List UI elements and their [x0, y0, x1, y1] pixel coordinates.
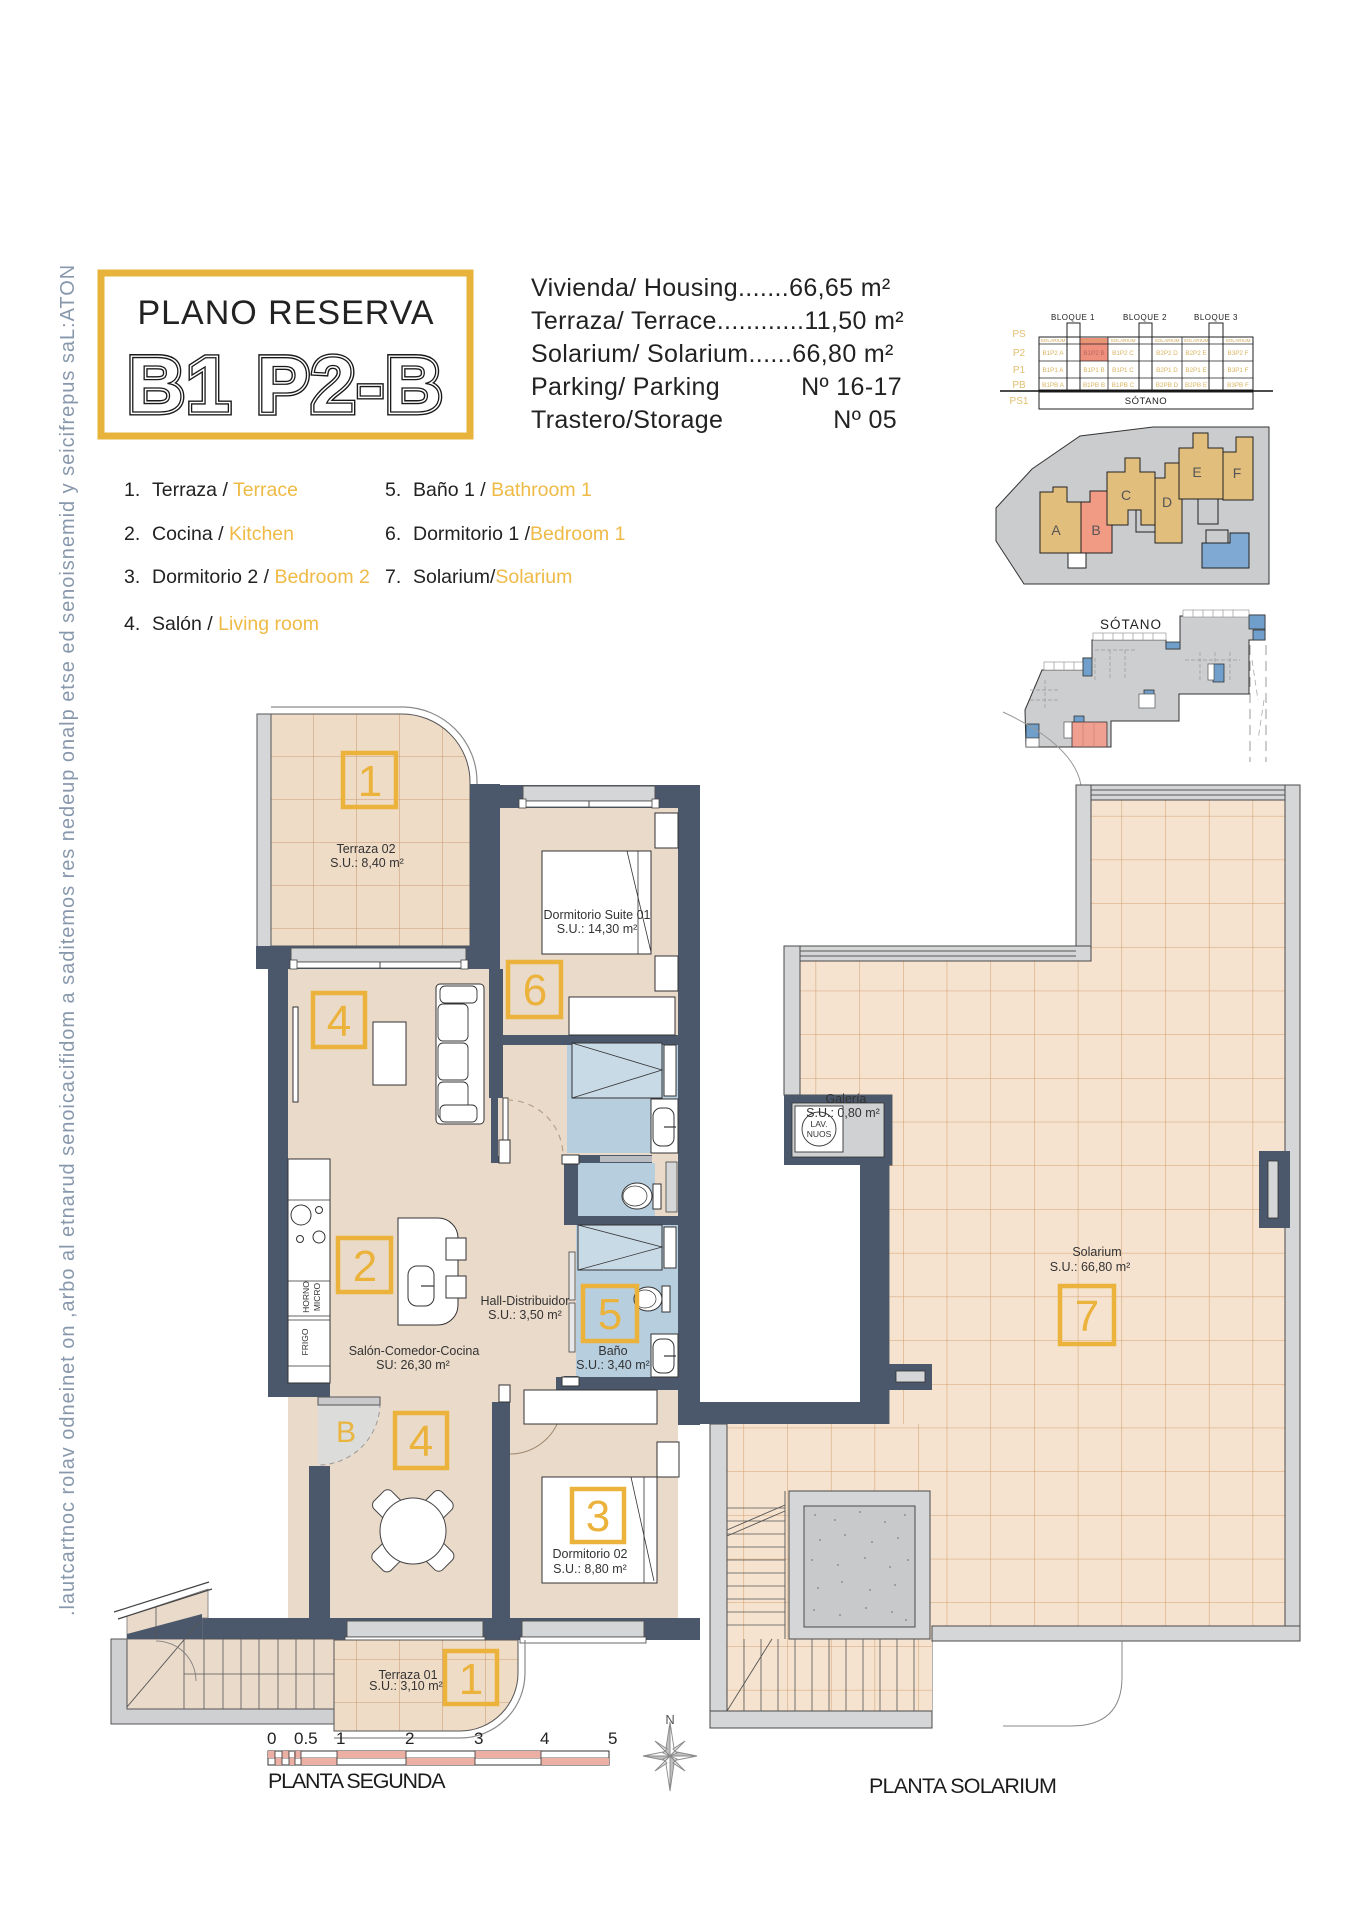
- svg-text:B1P2 C: B1P2 C: [1112, 350, 1134, 357]
- svg-text:S.U.: 8,40 m²: S.U.: 8,40 m²: [330, 856, 404, 870]
- svg-text:2: 2: [353, 1242, 377, 1291]
- svg-text:BLOQUE 1: BLOQUE 1: [1051, 313, 1095, 322]
- svg-text:B1P1 C: B1P1 C: [1112, 367, 1134, 374]
- svg-text:F: F: [1233, 465, 1242, 481]
- svg-text:PS: PS: [1012, 329, 1026, 340]
- svg-text:Hall-Distribuidor: Hall-Distribuidor: [481, 1294, 570, 1308]
- svg-text:3: 3: [586, 1492, 610, 1541]
- svg-text:B2P1 D: B2P1 D: [1156, 367, 1178, 374]
- svg-text:B1P1 A: B1P1 A: [1042, 367, 1064, 374]
- svg-text:Vivienda/ Housing.......66,65: Vivienda/ Housing.......66,65 m²: [531, 274, 891, 302]
- svg-text:7.: 7.: [385, 566, 401, 588]
- svg-text:S.U.: 3,40 m²: S.U.: 3,40 m²: [576, 1358, 650, 1372]
- svg-text:B2PB D: B2PB D: [1156, 382, 1179, 389]
- svg-text:3: 3: [474, 1729, 483, 1748]
- svg-text:SOLARIUM: SOLARIUM: [1225, 338, 1250, 344]
- svg-text:Dormitorio 1 /Bedroom 1: Dormitorio 1 /Bedroom 1: [413, 523, 625, 545]
- svg-text:Dormitorio 2 / Bedroom 2: Dormitorio 2 / Bedroom 2: [152, 566, 370, 588]
- svg-text:FRIGO: FRIGO: [300, 1328, 310, 1355]
- svg-text:1: 1: [336, 1729, 345, 1748]
- svg-text:Dormitorio 02: Dormitorio 02: [552, 1547, 627, 1561]
- svg-text:B1P2 B: B1P2 B: [1083, 350, 1104, 357]
- svg-text:B: B: [336, 1416, 356, 1449]
- svg-text:Solarium/Solarium: Solarium/Solarium: [413, 566, 572, 588]
- svg-text:S.U.: 3,50 m²: S.U.: 3,50 m²: [488, 1308, 562, 1322]
- svg-text:4: 4: [327, 997, 351, 1046]
- svg-text:S.U.: 3,10 m²: S.U.: 3,10 m²: [369, 1679, 443, 1693]
- svg-text:B1PB B: B1PB B: [1083, 382, 1105, 389]
- svg-text:B: B: [1091, 522, 1100, 538]
- svg-text:Nº 16-17: Nº 16-17: [801, 373, 902, 401]
- svg-text:2.: 2.: [124, 523, 140, 545]
- svg-text:Salón / Living room: Salón / Living room: [152, 613, 319, 635]
- svg-text:NUOS: NUOS: [807, 1129, 832, 1139]
- svg-text:Dormitorio Suite 01: Dormitorio Suite 01: [544, 908, 651, 922]
- svg-text:A: A: [1051, 522, 1061, 538]
- svg-text:1: 1: [358, 757, 382, 806]
- svg-text:S.U.: 0,80 m²: S.U.: 0,80 m²: [806, 1106, 880, 1120]
- svg-text:PS1: PS1: [1010, 396, 1029, 407]
- svg-text:B1P1 B: B1P1 B: [1083, 367, 1104, 374]
- svg-text:B2PB E: B2PB E: [1185, 382, 1207, 389]
- svg-text:D: D: [1162, 494, 1172, 510]
- svg-text:MICRO: MICRO: [312, 1282, 322, 1311]
- svg-text:B2P2 D: B2P2 D: [1156, 350, 1178, 357]
- svg-text:SOLARIUM: SOLARIUM: [1183, 338, 1208, 344]
- svg-text:0: 0: [267, 1729, 276, 1748]
- svg-text:BLOQUE 2: BLOQUE 2: [1123, 313, 1167, 322]
- svg-text:4: 4: [540, 1729, 549, 1748]
- svg-text:Cocina / Kitchen: Cocina / Kitchen: [152, 523, 294, 545]
- svg-text:2: 2: [405, 1729, 414, 1748]
- svg-text:B1P2 A: B1P2 A: [1042, 350, 1064, 357]
- svg-text:C: C: [1121, 487, 1131, 503]
- svg-text:S.U.: 8,80 m²: S.U.: 8,80 m²: [553, 1562, 627, 1576]
- svg-text:Parking/ Parking: Parking/ Parking: [531, 373, 720, 401]
- svg-text:Terraza/ Terrace............11: Terraza/ Terrace............11,50 m²: [531, 307, 904, 335]
- svg-text:Terraza 02: Terraza 02: [336, 842, 395, 856]
- svg-text:B2P1 E: B2P1 E: [1185, 367, 1206, 374]
- svg-text:S.U.: 66,80 m²: S.U.: 66,80 m²: [1050, 1260, 1131, 1274]
- svg-text:.lautcartnoc rolav odneinet on: .lautcartnoc rolav odneinet on ,arbo al …: [57, 264, 79, 1616]
- svg-text:Salón-Comedor-Cocina: Salón-Comedor-Cocina: [349, 1344, 480, 1358]
- svg-text:5: 5: [598, 1290, 622, 1339]
- svg-text:Nº 05: Nº 05: [833, 406, 897, 434]
- svg-text:P2: P2: [1013, 348, 1026, 359]
- svg-text:Trastero/Storage: Trastero/Storage: [531, 406, 723, 434]
- svg-text:P1: P1: [1013, 365, 1026, 376]
- svg-text:6: 6: [523, 966, 547, 1015]
- svg-text:PLANTA SOLARIUM: PLANTA SOLARIUM: [869, 1774, 1056, 1798]
- svg-text:B1 P2-B: B1 P2-B: [128, 340, 445, 429]
- svg-text:SÓTANO: SÓTANO: [1125, 396, 1167, 407]
- svg-text:6.: 6.: [385, 523, 401, 545]
- svg-text:1.: 1.: [124, 479, 140, 501]
- svg-text:PLANO RESERVA: PLANO RESERVA: [137, 294, 434, 332]
- svg-text:B3PB F: B3PB F: [1227, 382, 1249, 389]
- svg-text:5.: 5.: [385, 479, 401, 501]
- svg-text:B3P2 F: B3P2 F: [1228, 350, 1249, 357]
- svg-text:E: E: [1192, 464, 1201, 480]
- svg-text:PB: PB: [1012, 380, 1026, 391]
- svg-text:B1PB A: B1PB A: [1042, 382, 1065, 389]
- svg-text:3.: 3.: [124, 566, 140, 588]
- svg-text:SOLARIUM: SOLARIUM: [1040, 338, 1065, 344]
- svg-text:Galería: Galería: [826, 1092, 867, 1106]
- svg-text:7: 7: [1075, 1292, 1099, 1341]
- svg-text:SOLARIUM: SOLARIUM: [1110, 338, 1135, 344]
- svg-text:Terraza / Terrace: Terraza / Terrace: [152, 479, 298, 501]
- svg-text:0.5: 0.5: [294, 1729, 318, 1748]
- svg-text:LAV.: LAV.: [810, 1119, 827, 1129]
- svg-text:BLOQUE 3: BLOQUE 3: [1194, 313, 1238, 322]
- svg-text:PLANTA SEGUNDA: PLANTA SEGUNDA: [268, 1769, 446, 1793]
- svg-text:Solarium/ Solarium......66,80: Solarium/ Solarium......66,80 m²: [531, 340, 894, 368]
- svg-text:5: 5: [608, 1729, 617, 1748]
- svg-text:B1PB C: B1PB C: [1112, 382, 1135, 389]
- svg-text:SU: 26,30 m²: SU: 26,30 m²: [376, 1358, 450, 1372]
- svg-text:B3P1 F: B3P1 F: [1228, 367, 1249, 374]
- svg-text:SÓTANO: SÓTANO: [1100, 617, 1162, 632]
- svg-text:4: 4: [409, 1417, 433, 1466]
- svg-text:1: 1: [459, 1655, 483, 1704]
- svg-text:SOLARIUM: SOLARIUM: [1154, 338, 1179, 344]
- svg-text:Baño: Baño: [598, 1344, 627, 1358]
- svg-text:4.: 4.: [124, 613, 140, 635]
- svg-text:Solarium: Solarium: [1072, 1245, 1121, 1259]
- svg-text:B2P2 E: B2P2 E: [1185, 350, 1206, 357]
- svg-text:S.U.: 14,30 m²: S.U.: 14,30 m²: [557, 922, 638, 936]
- svg-text:Baño 1 / Bathroom 1: Baño 1 / Bathroom 1: [413, 479, 592, 501]
- svg-text:SOLARIUM: SOLARIUM: [1081, 338, 1106, 344]
- svg-text:HORNO: HORNO: [301, 1281, 311, 1313]
